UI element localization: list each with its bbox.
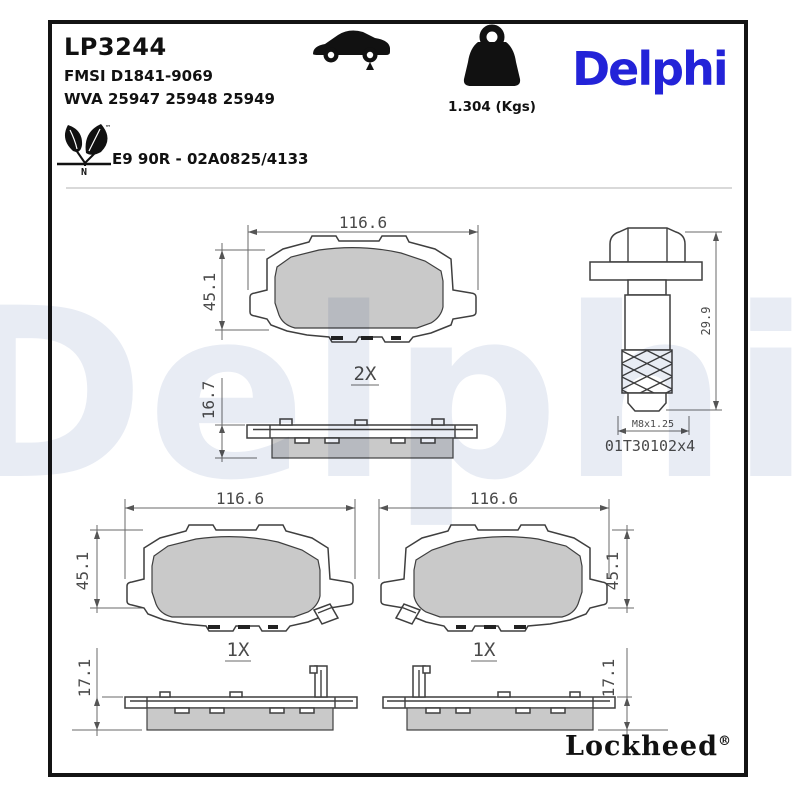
pad-front-left-drawing: 116.6 45.1 [70,485,380,655]
qty-label-left: 1X [227,639,250,661]
dim-thickness-top: 16.7 [199,381,218,420]
part-number: LP3244 [64,33,167,61]
pad-front-top-drawing: 116.6 45.1 [195,215,495,360]
guide-bolt-drawing: 29.9 M8x1.25 01T30102x4 [580,220,730,465]
rear-axle-arrow-icon [366,62,374,70]
header-divider [66,187,732,189]
pad-side-top-drawing: 2X 16.7 [195,360,495,470]
pad-front-right-drawing: 116.6 45.1 [370,485,680,655]
datasheet-page: { "header": { "part_number": "LP3244", "… [0,0,800,800]
weight-icon [461,24,523,96]
eco-letter: N [81,167,87,178]
dim-width-top: 116.6 [339,213,387,232]
bolt-part-ref: 01T30102x4 [605,437,695,455]
delphi-logo: Delphi [572,42,727,96]
lockheed-wordmark: Lockheed [565,731,718,762]
car-rear-axle-icon [310,26,396,72]
dim-width-left: 116.6 [216,489,264,508]
dim-height-top: 45.1 [200,273,219,312]
weight-value: 1.304 (Kgs) [445,99,539,115]
approval-number: E9 90R - 02A0825/4133 [112,150,308,168]
wva-reference: WVA 25947 25948 25949 [64,90,275,108]
qty-label-right: 1X [473,639,496,661]
eco-leaf-icon: N ™ [56,122,114,176]
dim-width-right: 116.6 [470,489,518,508]
dim-height-left: 45.1 [73,552,92,591]
registered-symbol: ® [718,734,732,749]
trademark-symbol: ™ [106,124,110,132]
dim-bolt-thread: M8x1.25 [632,419,674,430]
dim-thickness-left: 17.1 [75,659,94,698]
pad-side-left-drawing: 1X 17.1 [70,640,370,745]
dim-bolt-length: 29.9 [699,307,713,336]
lockheed-logo: Lockheed® [440,731,732,762]
fmsi-reference: FMSI D1841-9069 [64,67,213,85]
qty-label-top: 2X [354,363,377,385]
dim-thickness-right: 17.1 [599,659,618,698]
pad-side-right-drawing: 1X 17.1 [370,640,670,745]
